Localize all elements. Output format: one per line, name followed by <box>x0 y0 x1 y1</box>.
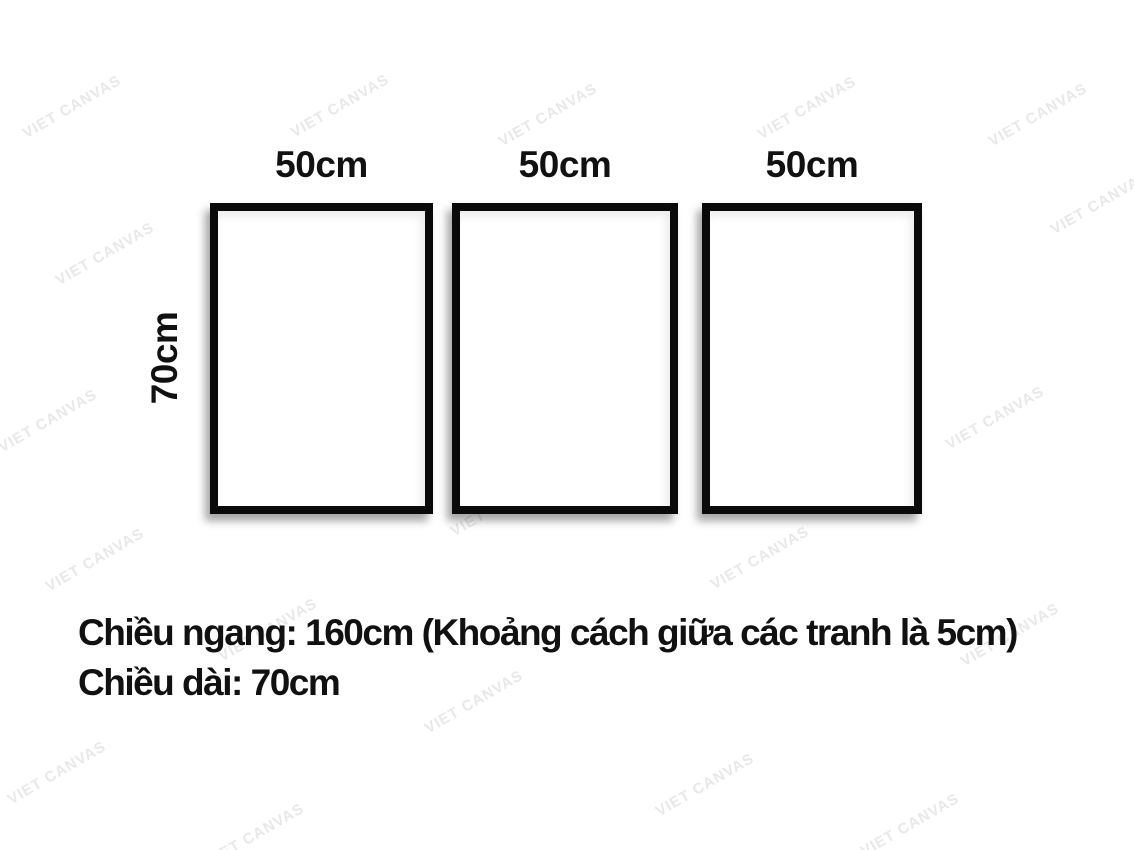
watermark-text: VIET CANVAS <box>5 738 109 808</box>
watermark-text: VIET CANVAS <box>203 800 307 850</box>
watermark-text: VIET CANVAS <box>20 72 124 142</box>
watermark-text: VIET CANVAS <box>53 219 157 289</box>
watermark-text: VIET CANVAS <box>858 790 962 850</box>
watermark-text: VIET CANVAS <box>0 386 100 456</box>
width-label-2: 50cm <box>452 143 678 187</box>
watermark-text: VIET CANVAS <box>708 523 812 593</box>
width-label-3: 50cm <box>702 143 922 187</box>
dimension-diagram: VIET CANVASVIET CANVASVIET CANVASVIET CA… <box>0 0 1134 850</box>
watermark-text: VIET CANVAS <box>496 80 600 150</box>
watermark-text: VIET CANVAS <box>43 525 147 595</box>
frame-2 <box>452 203 678 514</box>
caption-line-vertical: Chiều dài: 70cm <box>78 658 1017 708</box>
watermark-text: VIET CANVAS <box>943 383 1047 453</box>
watermark-text: VIET CANVAS <box>986 80 1090 150</box>
watermark-text: VIET CANVAS <box>288 71 392 141</box>
width-label-1: 50cm <box>210 143 433 187</box>
caption-line-horizontal: Chiều ngang: 160cm (Khoảng cách giữa các… <box>78 608 1017 658</box>
frame-1 <box>210 203 433 514</box>
watermark-text: VIET CANVAS <box>755 73 859 143</box>
caption: Chiều ngang: 160cm (Khoảng cách giữa các… <box>78 608 1017 708</box>
watermark-text: VIET CANVAS <box>653 750 757 820</box>
watermark-text: VIET CANVAS <box>1048 168 1134 238</box>
frame-3 <box>702 203 922 514</box>
height-label: 70cm <box>145 294 185 422</box>
